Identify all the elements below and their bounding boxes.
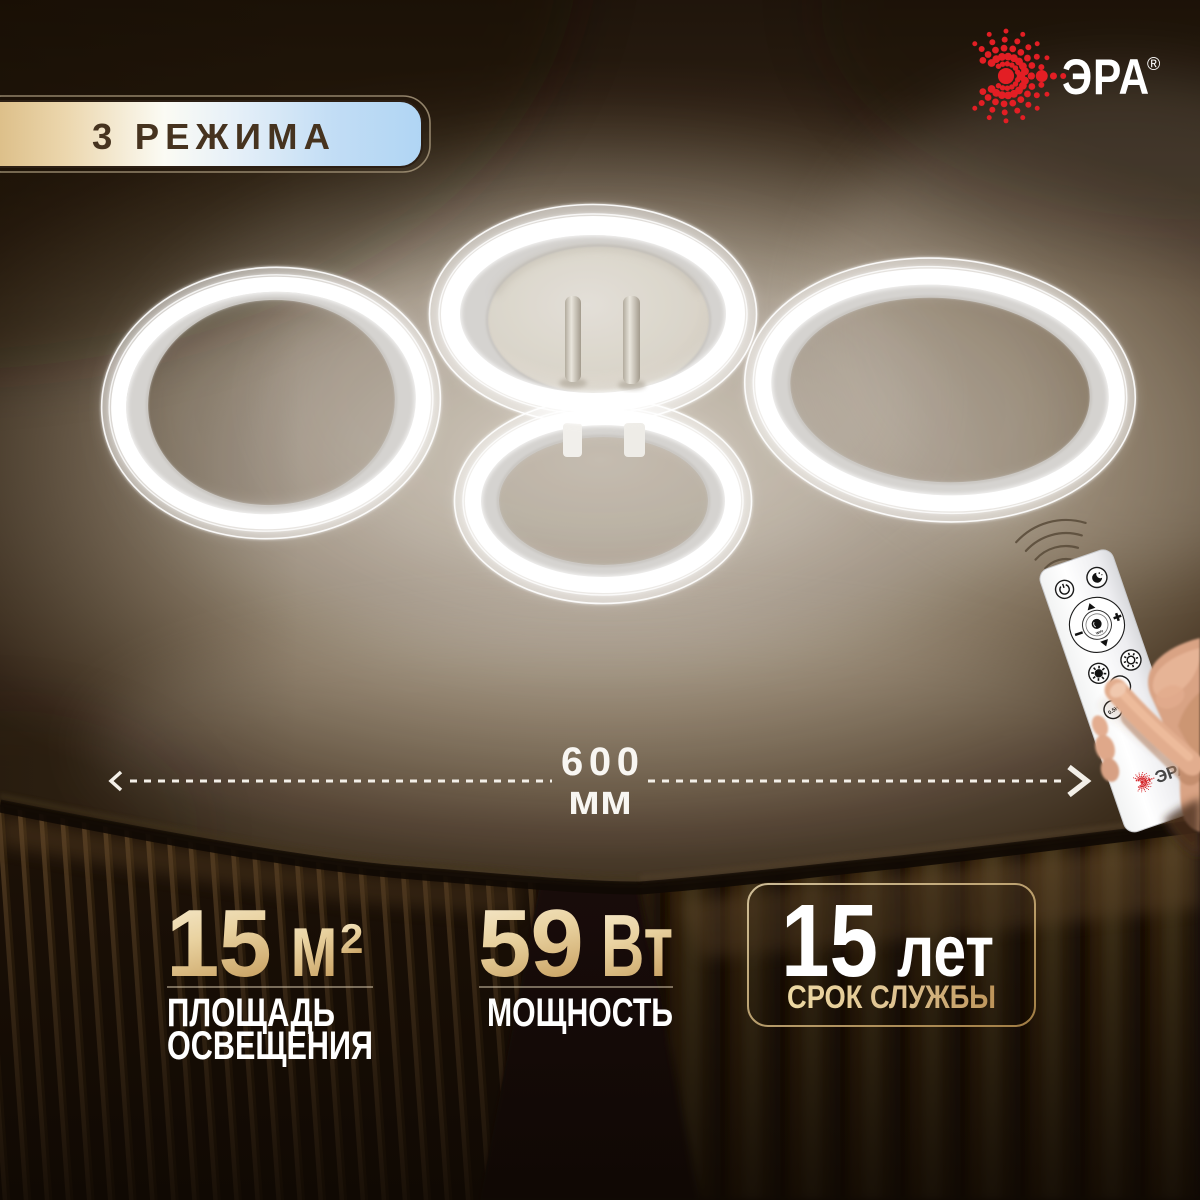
svg-text:ОСВЕЩЕНИЯ: ОСВЕЩЕНИЯ (167, 1024, 373, 1068)
svg-text:®: ® (1147, 54, 1160, 74)
svg-text:59: 59 (478, 890, 583, 997)
svg-text:МОЩНОСТЬ: МОЩНОСТЬ (487, 991, 673, 1035)
svg-text:мм: мм (568, 776, 632, 823)
svg-text:СРОК СЛУЖБЫ: СРОК СЛУЖБЫ (787, 979, 996, 1015)
svg-text:Вт: Вт (601, 896, 673, 995)
svg-text:3 РЕЖИМА: 3 РЕЖИМА (92, 116, 330, 157)
svg-text:15: 15 (166, 890, 271, 997)
svg-text:2: 2 (340, 915, 363, 962)
svg-text:ЭРА: ЭРА (1062, 49, 1150, 105)
svg-text:м: м (290, 896, 338, 996)
